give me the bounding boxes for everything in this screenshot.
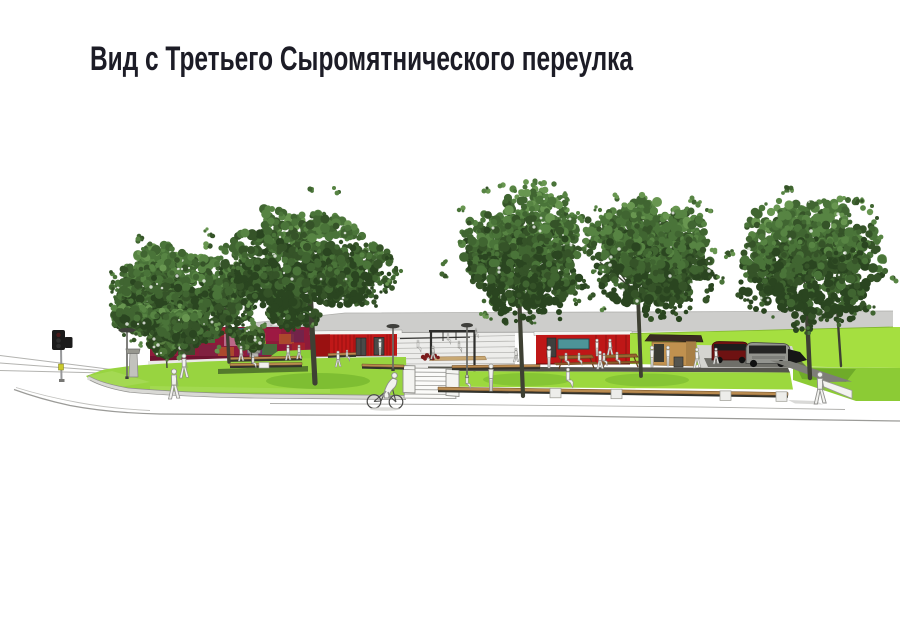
svg-text:Вид с Третьего Сыромятническог: Вид с Третьего Сыромятнического переулка [90, 40, 634, 78]
